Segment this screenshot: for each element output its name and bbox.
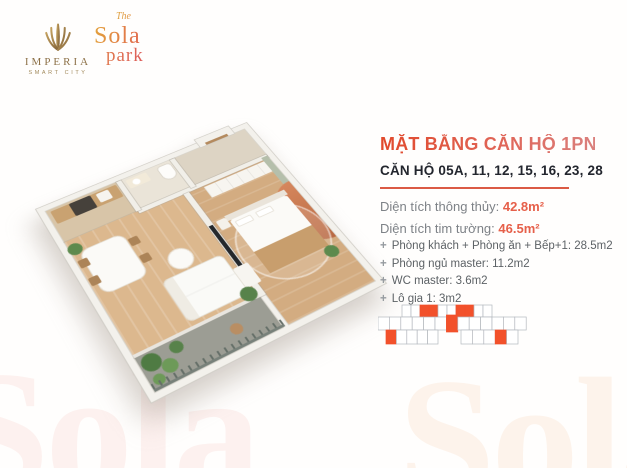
apartment-plan [36,123,386,403]
room-spec-item: +WC master: 3.6m2 [380,273,613,291]
area-value: 42.8m² [503,199,544,214]
area-figures: Diện tích thông thủy: 42.8m² Diện tích t… [380,196,544,240]
unit-numbers: CĂN HỘ 05A, 11, 12, 15, 16, 23, 28 [380,163,603,178]
area-line: Diện tích thông thủy: 42.8m² [380,196,544,218]
room-spec-list: +Phòng khách + Phòng ăn + Bếp+1: 28.5m2 … [380,238,613,308]
keyplan [378,301,530,351]
area-line: Diện tích tim tường: 46.5m² [380,218,544,240]
divider-line [380,187,569,189]
watermark-sola-right: Sola [398,352,627,468]
room-spec-text: Phòng khách + Phòng ăn + Bếp+1: 28.5m2 [392,240,613,252]
bullet-icon: + [380,275,387,287]
area-label: Diện tích tim tường: [380,221,498,236]
imperia-logo: IMPERIA SMART CITY [14,22,102,76]
area-value: 46.5m² [498,221,539,236]
page-title: MẶT BẰNG CĂN HỘ 1PN+ [380,134,595,155]
sola-park-logo: The Sola park [94,12,164,65]
imperia-wordmark: IMPERIA [14,56,102,68]
sola-logo-the: The [116,12,164,22]
room-spec-text: Phòng ngủ master: 11.2m2 [392,258,530,270]
room-spec-item: +Phòng khách + Phòng ăn + Bếp+1: 28.5m2 [380,238,613,256]
page: Sola Sola IMPERIA SMART CITY The Sola pa… [0,0,627,468]
bullet-icon: + [380,258,387,270]
bullet-icon: + [380,240,387,252]
room-spec-text: WC master: 3.6m2 [392,275,488,287]
area-label: Diện tích thông thủy: [380,199,503,214]
floorplan-3d [28,78,382,412]
room-spec-item: +Phòng ngủ master: 11.2m2 [380,256,613,274]
sola-logo-park: park [106,46,164,65]
imperia-tagline: SMART CITY [14,70,102,76]
keyplan-diagram [378,301,530,351]
imperia-tulip-icon [41,22,75,54]
